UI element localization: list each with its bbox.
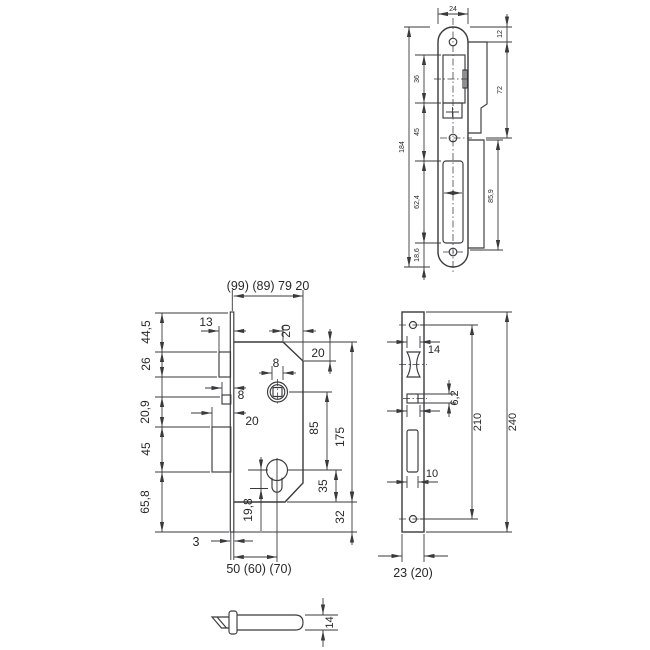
dim-seg-bottom: 65,8 xyxy=(138,490,152,514)
latch-bolt xyxy=(219,352,231,377)
dim-strike-hole-to-hole: 72 xyxy=(497,86,504,94)
dim-cylinder-length: 19,8 xyxy=(241,498,255,522)
dim-strike-latch-to-bolt: 45 xyxy=(414,128,421,136)
dim-latch-height: 14 xyxy=(324,616,336,628)
latch-head-outline xyxy=(212,617,229,628)
dim-faceplate-square-height: 6,2 xyxy=(449,390,461,405)
dim-strike-latch-cutout: 36 xyxy=(414,75,421,83)
dim-chamfer-width: 20 xyxy=(279,324,293,338)
dim-strike-bolt-to-end: 18,6 xyxy=(414,248,421,262)
lock-body-outline xyxy=(234,342,303,502)
dim-seg-latch: 26 xyxy=(139,357,153,371)
strike-lip-upper xyxy=(468,42,487,133)
faceplate-deadbolt-cutout xyxy=(407,430,418,472)
dim-faceplate-bolt-width: 10 xyxy=(426,468,438,480)
latch-flange xyxy=(229,611,237,634)
dim-cylinder-to-bottom: 35 xyxy=(316,479,330,493)
dim-body-depth: (99) (89) 79 20 xyxy=(227,279,310,293)
dim-strike-width: 24 xyxy=(449,6,457,13)
strike-lip-lower xyxy=(468,140,484,248)
dim-strike-bolt-cutout: 62,4 xyxy=(414,195,421,209)
dim-faceplate-length: 240 xyxy=(507,413,519,431)
strike-aux-mark xyxy=(446,107,459,117)
faceplate-outline xyxy=(402,312,424,532)
dim-deadbolt-throw: 20 xyxy=(245,414,259,428)
dim-latch-protrusion: 13 xyxy=(199,315,213,329)
dim-faceplate-overhang: 32 xyxy=(333,510,347,524)
strike-extension-lines xyxy=(404,8,512,267)
dim-chamfer-height: 20 xyxy=(311,346,325,360)
dim-body-height: 175 xyxy=(333,427,347,447)
dim-faceplate-thickness: 3 xyxy=(193,535,200,549)
dim-seg-mid: 20,9 xyxy=(138,400,152,424)
lock-faceplate-edge xyxy=(230,312,234,532)
dim-seg-deadbolt: 45 xyxy=(139,442,153,456)
dim-strike-top-to-hole: 12 xyxy=(497,30,504,38)
deadbolt xyxy=(212,427,231,472)
dim-faceplate-latch-width: 14 xyxy=(428,344,440,356)
faceplate-front-view: 14 6,2 10 210 240 23 (20) xyxy=(378,312,519,580)
dim-seg-top: 44,5 xyxy=(139,320,153,344)
dim-strike-lip-height: 85,9 xyxy=(488,189,495,203)
mortise-lock-technical-drawing: 24 184 36 45 62,4 18,6 12 72 85,9 (99) (… xyxy=(0,0,650,650)
technical-drawing-page: 24 184 36 45 62,4 18,6 12 72 85,9 (99) (… xyxy=(0,0,650,650)
latch-bar-outline xyxy=(237,615,303,630)
dim-aux-protrusion: 8 xyxy=(238,388,245,402)
dim-backset: 50 (60) (70) xyxy=(226,562,291,576)
dim-follower-square: 8 xyxy=(273,356,280,370)
dim-faceplate-width: 23 (20) xyxy=(393,566,433,580)
dim-follower-to-cylinder: 85 xyxy=(307,421,321,435)
lock-body-view: (99) (89) 79 20 13 20 20 8 8 20 44,5 2 xyxy=(138,279,357,576)
strike-plate-view: 24 184 36 45 62,4 18,6 12 72 85,9 xyxy=(399,6,512,280)
dim-strike-total-height: 184 xyxy=(399,141,406,153)
aux-bolt xyxy=(222,395,231,404)
latch-bolt-side-view: 14 xyxy=(212,598,338,647)
dim-faceplate-hole-spacing: 210 xyxy=(472,413,484,431)
latch-bevel-line xyxy=(217,617,227,628)
